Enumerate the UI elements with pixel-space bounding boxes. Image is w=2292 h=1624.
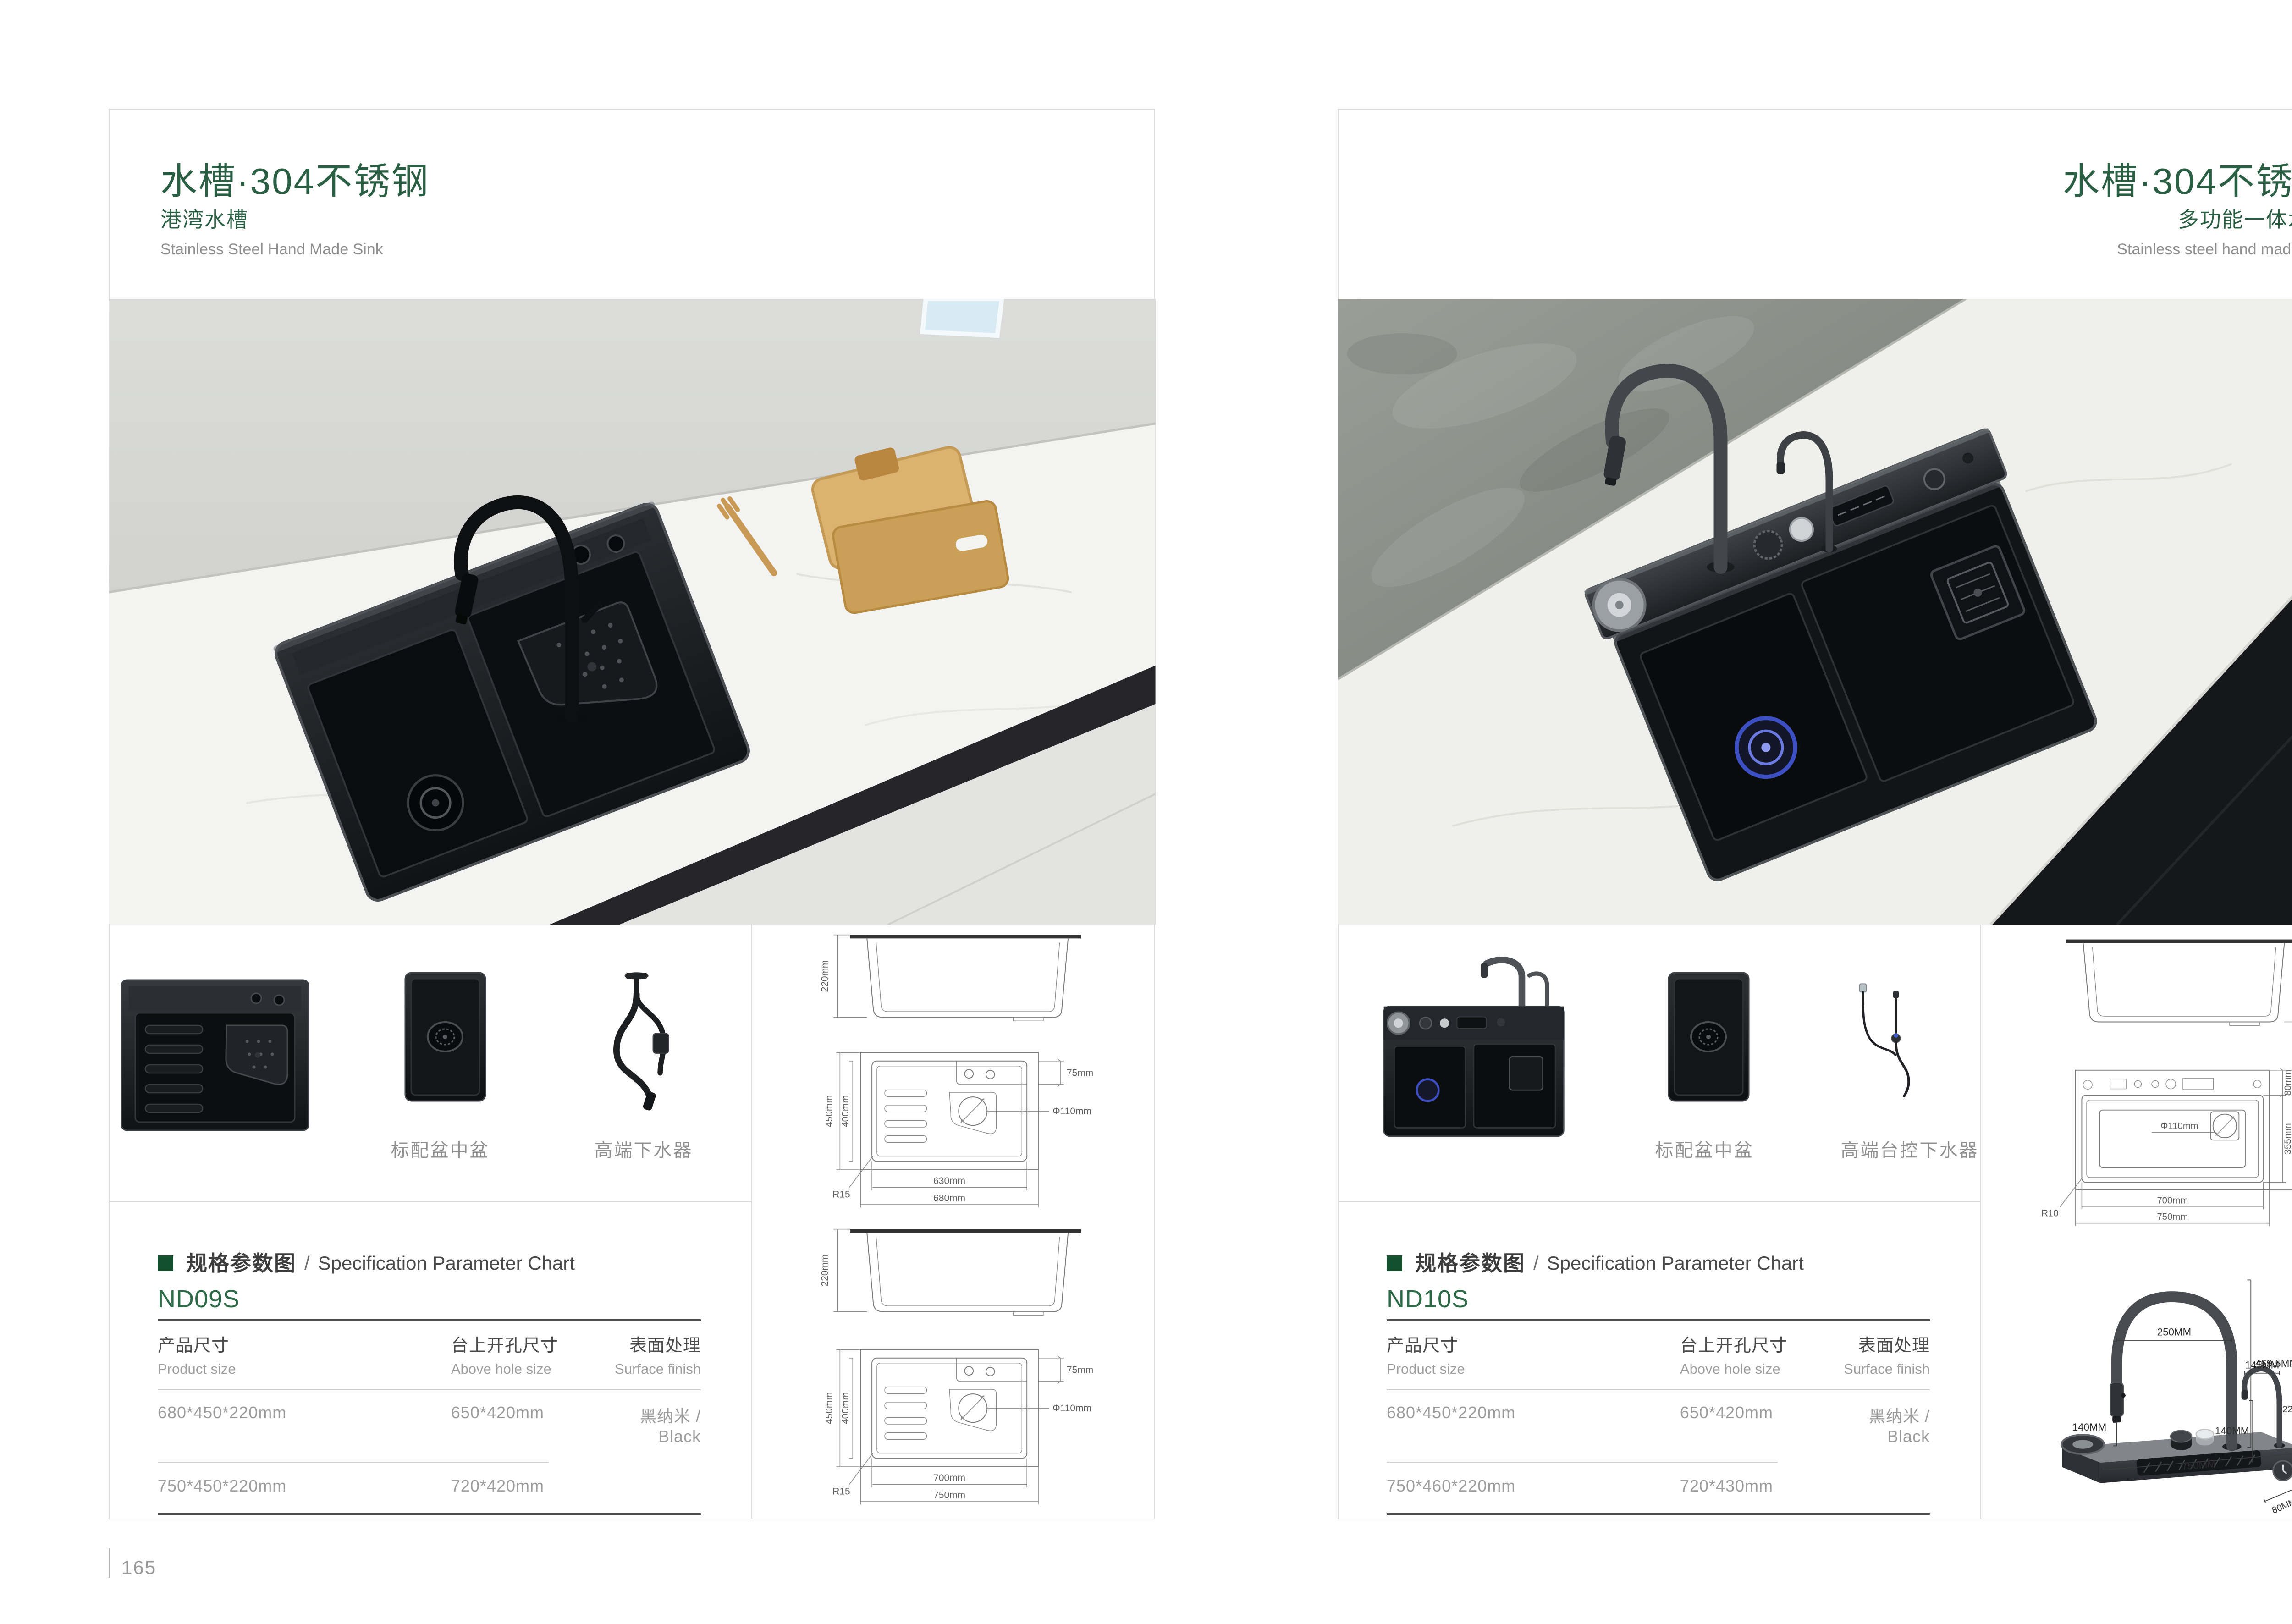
svg-text:Φ110mm: Φ110mm xyxy=(1052,1106,1091,1117)
divider xyxy=(1387,1513,1930,1515)
page-subtitle: 港湾水槽 xyxy=(160,203,248,233)
page-tick-left xyxy=(109,1548,110,1578)
spec-cell: 720*420mm xyxy=(451,1476,603,1496)
green-square-icon xyxy=(158,1255,173,1271)
page-header-left: 水槽·304不锈钢 港湾水槽 Stainless Steel Hand Made… xyxy=(110,110,1154,299)
thumb-label: 标配盆中盆 xyxy=(1613,1135,1796,1162)
svg-text:140MM: 140MM xyxy=(2215,1425,2249,1437)
spec-cell: 750*450*220mm xyxy=(158,1476,451,1496)
svg-text:700mm: 700mm xyxy=(933,1473,965,1483)
product-page-right: 水槽·304不锈钢 多功能一体水槽 Stainless steel hand m… xyxy=(1338,109,2292,1519)
svg-text:400mm: 400mm xyxy=(840,1095,851,1127)
spec-cell: 黑纳米 / Black xyxy=(1832,1403,1930,1446)
technical-drawings-left: 220mm xyxy=(751,925,1154,1519)
green-square-icon xyxy=(1387,1255,1402,1271)
bottom-section-right: 标配盆中盆 高端台控下水器 规格参数图 / Specification Para… xyxy=(1339,925,2292,1519)
spec-cell xyxy=(603,1476,701,1496)
drawing-top-view: Φ110mm 450mm 400mm 75mm R15 700mm 750mm xyxy=(807,1335,1119,1513)
spec-row: 750*460*220mm 720*430mm xyxy=(1387,1476,1930,1496)
divider xyxy=(1387,1462,1778,1463)
svg-text:220mm: 220mm xyxy=(820,960,830,992)
page-title: 水槽·304不锈钢 xyxy=(160,152,430,205)
svg-text:400mm: 400mm xyxy=(840,1392,851,1424)
page-number-left: 165 xyxy=(121,1557,156,1579)
svg-text:R10: R10 xyxy=(2041,1209,2058,1219)
divider xyxy=(158,1319,701,1321)
drawing-faucet: 250MM 469.5MM 140MM 750MM 145MM 140MM 22… xyxy=(2027,1257,2292,1513)
catalog-spread: 水槽·304不锈钢 港湾水槽 Stainless Steel Hand Made… xyxy=(0,0,2292,1624)
svg-text:140MM: 140MM xyxy=(2072,1421,2106,1433)
spec-section-right: 规格参数图 / Specification Parameter Chart ND… xyxy=(1387,1202,1930,1515)
svg-text:R15: R15 xyxy=(832,1486,850,1497)
svg-text:225MM: 225MM xyxy=(2282,1404,2292,1415)
drawing-side-view: 220mm xyxy=(807,1223,1119,1330)
thumb-sink-faucet xyxy=(1366,952,1581,1147)
divider xyxy=(158,1513,701,1515)
thumb-inner-basin xyxy=(1666,970,1751,1106)
thumb-inner-basin xyxy=(403,970,488,1106)
thumb-label: 高端台控下水器 xyxy=(1818,1135,2001,1162)
svg-text:Φ110mm: Φ110mm xyxy=(2160,1121,2198,1131)
svg-text:750mm: 750mm xyxy=(2157,1212,2188,1222)
spec-cell: 680*450*220mm xyxy=(158,1403,451,1446)
product-photo-right xyxy=(1338,299,2292,925)
svg-text:630mm: 630mm xyxy=(933,1176,965,1186)
thumb-label: 高端下水器 xyxy=(552,1135,735,1162)
divider xyxy=(1387,1319,1930,1321)
spec-row: 680*450*220mm 650*420mm 黑纳米 / Black xyxy=(158,1403,701,1446)
product-page-left: 水槽·304不锈钢 港湾水槽 Stainless Steel Hand Made… xyxy=(109,109,1155,1519)
spec-cell: 黑纳米 / Black xyxy=(603,1403,701,1446)
divider xyxy=(158,1462,549,1463)
svg-text:Φ110mm: Φ110mm xyxy=(1052,1403,1091,1414)
thumb-drain-kit xyxy=(598,968,689,1122)
spec-cell: 680*450*220mm xyxy=(1387,1403,1680,1446)
page-subtitle-en: Stainless steel hand made sink xyxy=(2117,241,2292,259)
svg-text:750mm: 750mm xyxy=(933,1490,965,1500)
svg-text:250MM: 250MM xyxy=(2157,1327,2191,1338)
model-number: ND10S xyxy=(1387,1286,1930,1312)
drawing-top-view: Φ110mm 450mm 400mm 75mm R15 630mm 680mm xyxy=(807,1038,1119,1216)
svg-text:145MM: 145MM xyxy=(2245,1359,2279,1371)
drawing-top-view: Φ110mm 80mm 355mm 460mm R10 700mm 750mm xyxy=(2027,1053,2292,1247)
page-subtitle: 多功能一体水槽 xyxy=(2178,203,2292,233)
divider xyxy=(158,1389,701,1390)
svg-text:75mm: 75mm xyxy=(1067,1068,1093,1078)
kitchen-scene-right xyxy=(1338,299,2292,925)
drawing-side-view: 220mm xyxy=(807,929,1119,1036)
spec-table-header: 产品尺寸Product size 台上开孔尺寸Above hole size 表… xyxy=(158,1331,701,1377)
thumb-label: 标配盆中盆 xyxy=(348,1135,532,1162)
spec-cell: 650*420mm xyxy=(451,1403,603,1446)
accessory-thumbs-left: 标配盆中盆 高端下水器 xyxy=(110,925,751,1202)
kitchen-scene-left xyxy=(109,299,1156,925)
thumb-deck-drain-kit xyxy=(1852,963,1921,1117)
model-number: ND09S xyxy=(158,1286,701,1312)
spec-cell: 720*430mm xyxy=(1680,1476,1832,1496)
svg-text:220mm: 220mm xyxy=(820,1255,830,1287)
page-title: 水槽·304不锈钢 xyxy=(2063,152,2292,205)
svg-text:355mm: 355mm xyxy=(2283,1123,2292,1154)
bottom-section-left: 标配盆中盆 高端下水器 规格参数图 / Specification Parame… xyxy=(110,925,1154,1519)
product-photo-left xyxy=(109,299,1156,925)
spec-cell: 750*460*220mm xyxy=(1387,1476,1680,1496)
spec-section-left: 规格参数图 / Specification Parameter Chart ND… xyxy=(158,1202,701,1515)
technical-drawings-right: 220mm Φ11 xyxy=(1980,925,2292,1519)
svg-text:75mm: 75mm xyxy=(1067,1365,1093,1375)
thumb-sink-top-view xyxy=(119,977,311,1135)
spec-section-title: 规格参数图 / Specification Parameter Chart xyxy=(158,1252,701,1274)
svg-text:700mm: 700mm xyxy=(2157,1196,2188,1206)
svg-text:680mm: 680mm xyxy=(933,1193,965,1203)
spec-cell: 650*420mm xyxy=(1680,1403,1832,1446)
divider xyxy=(1387,1389,1930,1390)
spec-table-header: 产品尺寸Product size 台上开孔尺寸Above hole size 表… xyxy=(1387,1331,1930,1377)
spec-cell xyxy=(1832,1476,1930,1496)
page-subtitle-en: Stainless Steel Hand Made Sink xyxy=(160,241,383,259)
page-header-right: 水槽·304不锈钢 多功能一体水槽 Stainless steel hand m… xyxy=(1339,110,2292,299)
svg-text:450mm: 450mm xyxy=(824,1392,834,1424)
accessory-thumbs-right: 标配盆中盆 高端台控下水器 xyxy=(1339,925,1980,1202)
svg-text:450mm: 450mm xyxy=(824,1095,834,1127)
spec-row: 750*450*220mm 720*420mm xyxy=(158,1476,701,1496)
window xyxy=(923,299,1002,336)
svg-text:R15: R15 xyxy=(832,1189,850,1200)
spec-row: 680*450*220mm 650*420mm 黑纳米 / Black xyxy=(1387,1403,1930,1446)
spec-section-title: 规格参数图 / Specification Parameter Chart xyxy=(1387,1252,1930,1274)
svg-text:80MM: 80MM xyxy=(2270,1497,2292,1513)
svg-text:80mm: 80mm xyxy=(2283,1070,2292,1096)
drawing-side-view: 220mm xyxy=(2027,934,2292,1040)
